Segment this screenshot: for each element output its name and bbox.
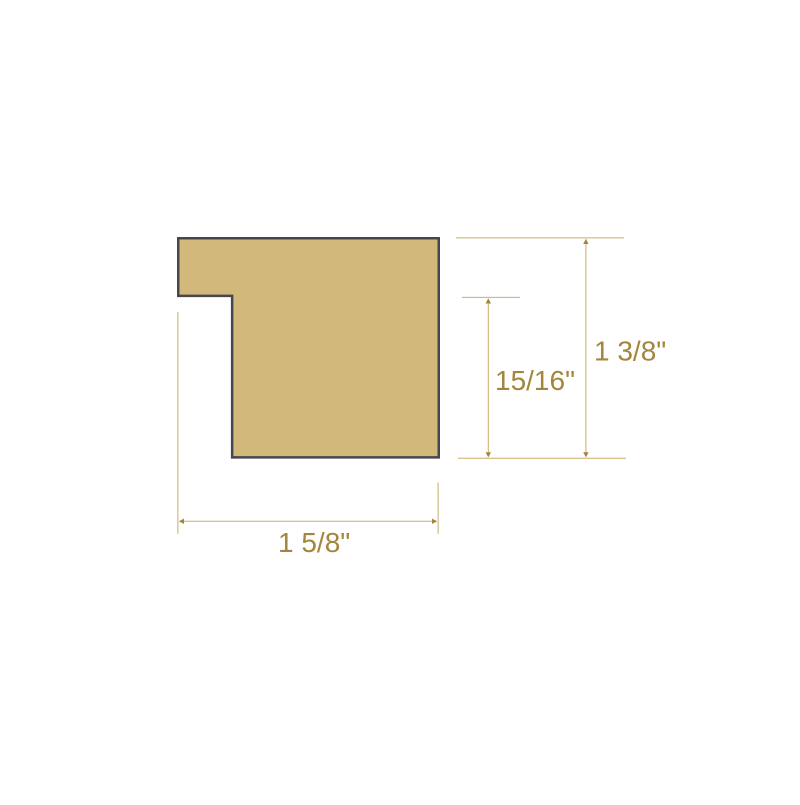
svg-text:1 5/8": 1 5/8" — [278, 527, 350, 558]
svg-text:1 3/8": 1 3/8" — [594, 336, 666, 367]
svg-text:15/16": 15/16" — [495, 365, 575, 396]
